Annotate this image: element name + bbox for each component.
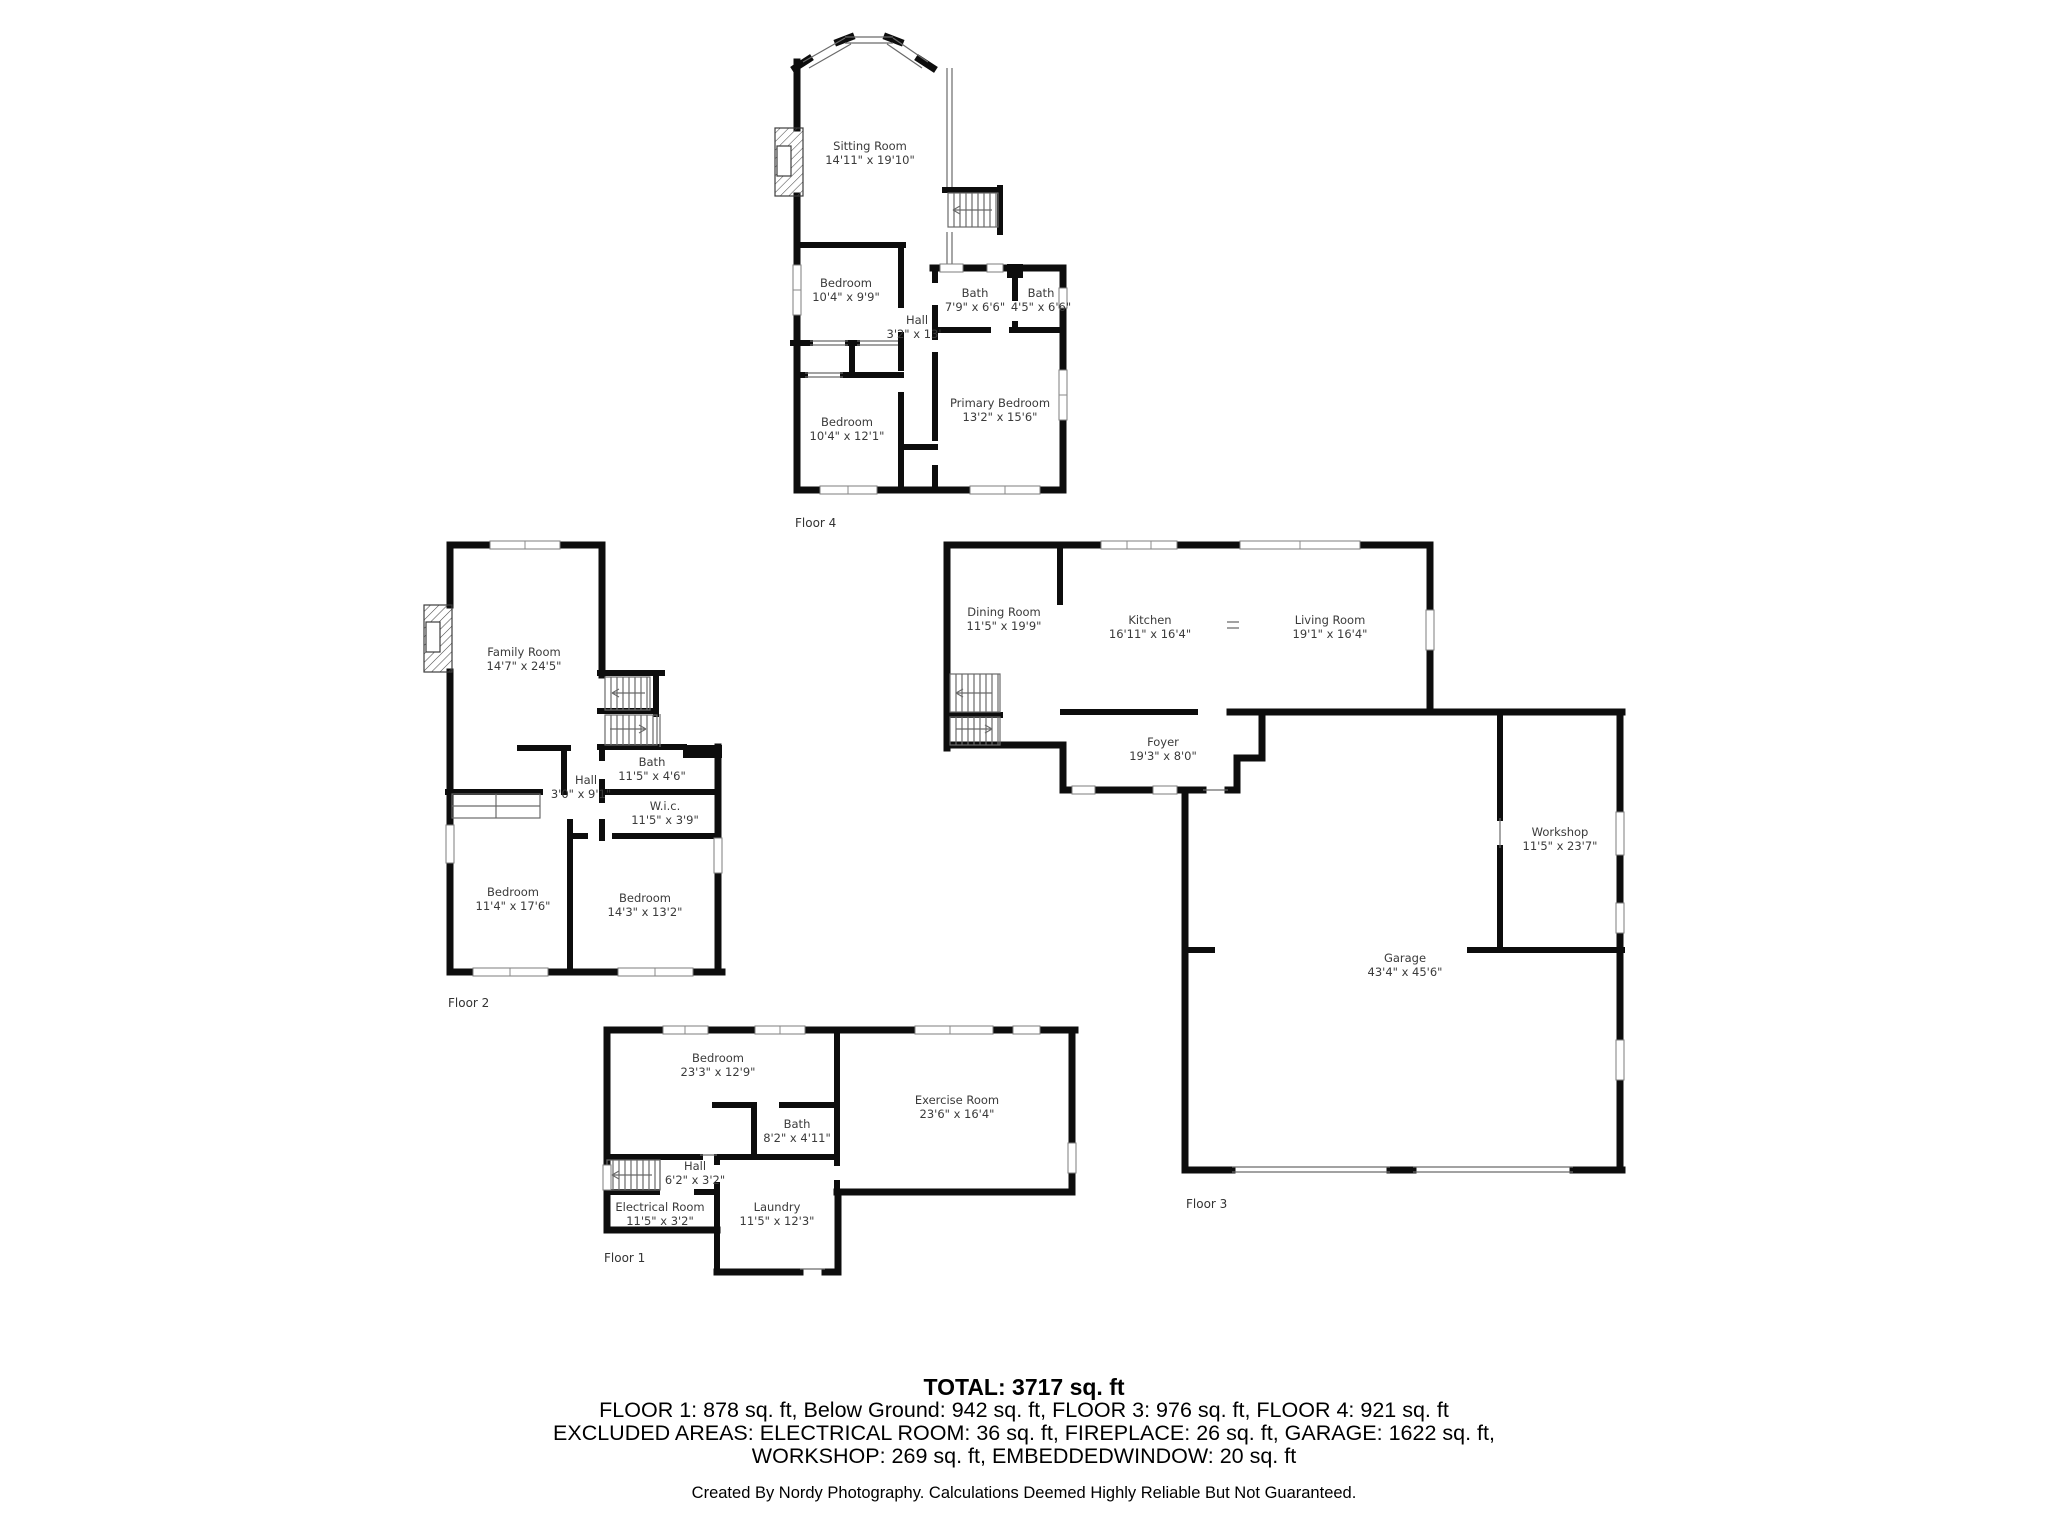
room-dims-garage: 43'4" x 45'6" (1368, 965, 1443, 979)
room-label-bath-2: Bath (639, 755, 666, 769)
room-label-bath-4b: Bath (1028, 286, 1055, 300)
room-dims-hall-4: 3'2" x 13' (887, 327, 942, 341)
wall-corner-fill (1007, 264, 1023, 278)
excluded-areas-2: WORKSHOP: 269 sq. ft, EMBEDDEDWINDOW: 20… (0, 1445, 2048, 1468)
room-dims-bedroom-4a: 10'4" x 9'9" (812, 290, 880, 304)
room-dims-bedroom-2a: 11'4" x 17'6" (476, 899, 551, 913)
room-dims-sitting-room: 14'11" x 19'10" (825, 153, 915, 167)
room-dims-bath-4a: 7'9" x 6'6" (945, 300, 1005, 314)
floor-4-label: Floor 4 (795, 516, 836, 530)
room-dims-kitchen: 16'11" x 16'4" (1109, 627, 1191, 641)
room-label-hall-4: Hall (906, 313, 928, 327)
floor-2-label: Floor 2 (448, 996, 489, 1010)
floor-3-plan: Dining Room 11'5" x 19'9" Kitchen 16'11"… (947, 541, 1624, 1211)
total-area: TOTAL: 3717 sq. ft (0, 1376, 2048, 1399)
room-dims-hall-1: 6'2" x 3'2" (665, 1173, 725, 1187)
room-label-bedroom-4a: Bedroom (820, 276, 872, 290)
room-label-family-room: Family Room (487, 645, 560, 659)
room-label-dining-room: Dining Room (967, 605, 1041, 619)
floor-4-stairs (948, 193, 998, 227)
room-dims-workshop: 11'5" x 23'7" (1523, 839, 1598, 853)
room-label-primary-bedroom: Primary Bedroom (950, 396, 1050, 410)
room-dims-exercise-room: 23'6" x 16'4" (920, 1107, 995, 1121)
summary-footer: TOTAL: 3717 sq. ft FLOOR 1: 878 sq. ft, … (0, 1376, 2048, 1503)
floor-4-plan: Sitting Room 14'11" x 19'10" Bedroom 10'… (775, 37, 1071, 530)
room-label-foyer: Foyer (1147, 735, 1179, 749)
floorplan-page: Sitting Room 14'11" x 19'10" Bedroom 10'… (0, 0, 2048, 1536)
room-dims-family-room: 14'7" x 24'5" (487, 659, 562, 673)
floor-1-plan: Bedroom 23'3" x 12'9" Exercise Room 23'6… (603, 1026, 1076, 1272)
room-label-electrical-room: Electrical Room (615, 1200, 704, 1214)
room-dims-bath-2: 11'5" x 4'6" (618, 769, 686, 783)
room-label-hall-1: Hall (684, 1159, 706, 1173)
room-dims-bedroom-1: 23'3" x 12'9" (681, 1065, 756, 1079)
floor-2-plan: Family Room 14'7" x 24'5" Bath 11'5" x 4… (424, 541, 722, 1010)
floor-2-closet (452, 794, 540, 818)
floor-1-outer-walls (607, 1030, 1075, 1272)
room-dims-bath-1: 8'2" x 4'11" (763, 1131, 831, 1145)
room-label-bath-4a: Bath (962, 286, 989, 300)
room-dims-bedroom-4b: 10'4" x 12'1" (810, 429, 885, 443)
room-dims-wic: 11'5" x 3'9" (631, 813, 699, 827)
room-dims-foyer: 19'3" x 8'0" (1129, 749, 1197, 763)
credit-line: Created By Nordy Photography. Calculatio… (0, 1484, 2048, 1503)
room-label-kitchen: Kitchen (1128, 613, 1171, 627)
room-dims-bedroom-2b: 14'3" x 13'2" (608, 905, 683, 919)
room-dims-living-room: 19'1" x 16'4" (1293, 627, 1368, 641)
floor-1-label: Floor 1 (604, 1251, 645, 1265)
floor-areas: FLOOR 1: 878 sq. ft, Below Ground: 942 s… (0, 1399, 2048, 1422)
kitchen-living-stub (1227, 622, 1239, 628)
room-label-bedroom-4b: Bedroom (821, 415, 873, 429)
room-label-laundry: Laundry (754, 1200, 801, 1214)
floor-3-outer-walls (947, 545, 1622, 1170)
room-dims-hall-2: 3'0" x 9'1" (551, 787, 611, 801)
room-label-exercise-room: Exercise Room (915, 1093, 999, 1107)
room-label-bedroom-2a: Bedroom (487, 885, 539, 899)
fireplace-floor-2 (424, 605, 452, 672)
room-label-wic: W.i.c. (650, 799, 681, 813)
room-dims-primary-bedroom: 13'2" x 15'6" (963, 410, 1038, 424)
room-dims-laundry: 11'5" x 12'3" (740, 1214, 815, 1228)
wall-corner-fill (683, 745, 722, 758)
floorplan-canvas: Sitting Room 14'11" x 19'10" Bedroom 10'… (0, 0, 2048, 1536)
fireplace-floor-4 (775, 128, 803, 196)
room-label-living-room: Living Room (1295, 613, 1366, 627)
floor-4-bay-window (803, 37, 928, 68)
room-label-hall-2: Hall (575, 773, 597, 787)
room-label-workshop: Workshop (1532, 825, 1589, 839)
floor-3-label: Floor 3 (1186, 1197, 1227, 1211)
room-label-garage: Garage (1384, 951, 1426, 965)
room-label-sitting-room: Sitting Room (833, 139, 907, 153)
room-dims-dining-room: 11'5" x 19'9" (967, 619, 1042, 633)
room-label-bedroom-2b: Bedroom (619, 891, 671, 905)
floor-4-open-rail (947, 68, 952, 268)
excluded-areas: EXCLUDED AREAS: ELECTRICAL ROOM: 36 sq. … (0, 1422, 2048, 1445)
room-dims-electrical-room: 11'5" x 3'2" (626, 1214, 694, 1228)
floor-1-stairs (607, 1160, 660, 1190)
floor-3-stairs (950, 674, 1000, 745)
room-label-bath-1: Bath (784, 1117, 811, 1131)
room-label-bedroom-1: Bedroom (692, 1051, 744, 1065)
room-dims-bath-4b: 4'5" x 6'6" (1011, 300, 1071, 314)
